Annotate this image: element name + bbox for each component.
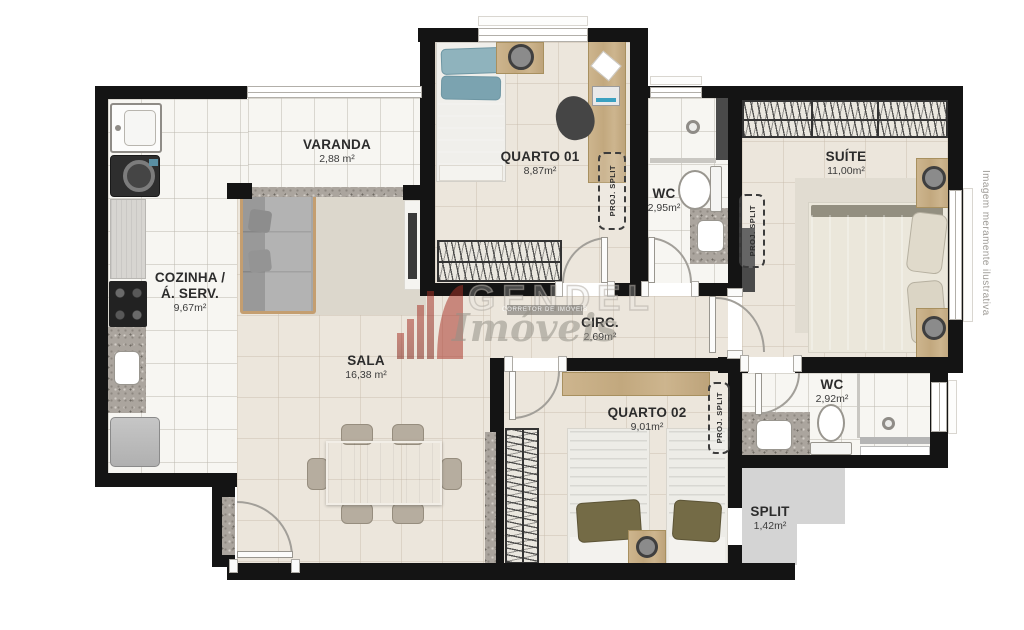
sofa-seat-cushions	[265, 191, 311, 311]
fridge	[110, 417, 160, 467]
wall	[227, 563, 795, 580]
label-wc1: WC 2,95m²	[648, 186, 681, 215]
logo-bar	[417, 305, 424, 359]
wardrobe-divider	[811, 102, 813, 136]
room-name: QUARTO 02	[608, 405, 687, 421]
shower-wall-wc1	[716, 98, 728, 160]
wall	[740, 86, 962, 100]
proj-split-label: PROJ. SPLIT	[748, 205, 757, 256]
wall	[420, 198, 435, 288]
wardrobe-quarto01	[437, 240, 562, 282]
washing-machine	[110, 155, 160, 197]
dining-chair	[341, 503, 373, 524]
window-wc2	[931, 382, 947, 432]
laptop	[592, 86, 620, 106]
label-varanda: VARANDA 2,88 m²	[303, 137, 371, 166]
window-sill	[650, 76, 702, 85]
label-cozinha: COZINHA / Á. SERV. 9,67m²	[155, 270, 225, 315]
wardrobe-quarto02	[505, 428, 539, 564]
tv-panel	[404, 200, 421, 290]
bed-blanket	[811, 215, 917, 350]
bed-pillow	[441, 47, 502, 75]
wardrobe-divider	[877, 102, 879, 136]
laptop-keyboard	[596, 98, 616, 102]
floor-plan: PROJ. SPLIT PROJ. SPLIT PROJ. SPLIT VARA…	[0, 0, 1024, 630]
logo-bar	[427, 291, 434, 359]
disclaimer-text: Imagem meramente ilustrativa	[980, 170, 991, 385]
dining-table	[326, 441, 442, 505]
wall	[95, 86, 108, 478]
label-split: SPLIT 1,42m²	[750, 504, 789, 533]
dining-chair	[441, 458, 462, 490]
proj-split-label: PROJ. SPLIT	[715, 392, 724, 443]
room-area: 8,87m²	[501, 165, 580, 178]
room-area: 9,01m²	[608, 421, 687, 434]
bed-pillow	[441, 75, 501, 100]
kitchen-sink	[114, 351, 140, 385]
bed-pillow	[672, 499, 723, 542]
bed-pillow	[905, 211, 948, 275]
door-jamb	[727, 288, 743, 297]
wall	[227, 183, 252, 199]
wardrobe-suite	[742, 100, 948, 138]
window-sill	[948, 380, 957, 434]
tank-basin	[124, 110, 156, 146]
wall	[630, 28, 648, 283]
entry-jamb-stone	[222, 497, 235, 555]
logo-bar	[397, 333, 404, 359]
room-name: QUARTO 01	[501, 149, 580, 165]
sofa	[240, 188, 316, 314]
quarto01-door-leaf	[601, 237, 608, 283]
door-jamb	[740, 355, 749, 372]
watermark-script: Imóveis	[452, 305, 617, 350]
wc1-door-leaf	[648, 237, 655, 283]
shelf-quarto02	[562, 372, 710, 396]
window-wc1	[650, 87, 702, 98]
bed-blanket	[438, 103, 504, 165]
washer-panel	[149, 159, 158, 166]
room-area: 2,92m²	[816, 393, 849, 406]
shower-glass-wc2	[857, 370, 860, 438]
lamp-quarto02	[636, 536, 658, 558]
lamp-suite-bottom	[922, 316, 946, 340]
shower-glass-wc1	[650, 158, 716, 163]
room-area: 1,42m²	[750, 520, 789, 533]
window-suite	[949, 190, 962, 320]
label-suite: SUÍTE 11,00m²	[826, 149, 867, 178]
proj-split-box-quarto02: PROJ. SPLIT	[708, 382, 730, 454]
room-area: 16,38 m²	[345, 369, 386, 382]
shower-ledge-wc2	[860, 437, 930, 444]
room-name: SPLIT	[750, 504, 789, 520]
shower-head-wc1	[686, 120, 700, 134]
label-quarto02: QUARTO 02 9,01m²	[608, 405, 687, 434]
sofa-pillow	[248, 209, 273, 234]
bed-sheet	[439, 165, 503, 181]
sofa-pillow	[248, 249, 272, 273]
proj-split-label: PROJ. SPLIT	[608, 165, 617, 216]
room-name: SUÍTE	[826, 149, 867, 165]
quarto02-door-leaf	[509, 371, 516, 420]
lamp-suite-top	[922, 166, 946, 190]
wall	[420, 28, 435, 200]
wall	[728, 468, 742, 508]
wall	[728, 455, 948, 468]
room-area: 2,95m²	[648, 202, 681, 215]
room-area: 9,67m²	[155, 302, 225, 315]
entry-door-leaf	[237, 551, 293, 558]
varanda-railing	[247, 86, 422, 98]
wall	[795, 357, 963, 373]
room-name: VARANDA	[303, 137, 371, 153]
room-name: COZINHA /	[155, 270, 225, 286]
dining-chair	[307, 458, 328, 490]
laundry-tank	[110, 103, 162, 153]
suite-door-leaf	[709, 296, 716, 353]
label-wc2: WC 2,92m²	[816, 377, 849, 406]
sink-wc1	[697, 220, 724, 252]
label-quarto01: QUARTO 01 8,87m²	[501, 149, 580, 178]
logo-bar	[407, 319, 414, 359]
watermark: GENDEL CORRETOR DE IMÓVEIS Imóveis	[395, 281, 685, 363]
wall	[728, 545, 742, 575]
shower-head-wc2	[882, 417, 895, 430]
door-jamb	[229, 559, 238, 573]
lamp-quarto01	[508, 44, 534, 70]
wall	[95, 86, 247, 99]
varanda-sliding-door-track	[252, 187, 403, 197]
door-jamb	[691, 281, 699, 297]
sink-wc2	[756, 420, 792, 450]
toilet-wc2	[817, 404, 845, 442]
toilet-wc1	[678, 170, 712, 210]
window-sill	[478, 16, 588, 26]
toilet-tank-wc2	[810, 442, 852, 455]
window-quarto01	[478, 28, 588, 42]
proj-split-box-quarto01: PROJ. SPLIT	[598, 152, 626, 230]
window-sill	[963, 188, 973, 322]
room-area: 11,00m²	[826, 165, 867, 178]
label-sala: SALA 16,38 m²	[345, 353, 386, 382]
wc2-door-leaf	[755, 373, 762, 415]
room-name: Á. SERV.	[155, 286, 225, 302]
stove	[109, 281, 147, 327]
room-area: 2,88 m²	[303, 153, 371, 166]
room-name: WC	[648, 186, 681, 202]
toilet-tank-wc1	[710, 166, 722, 212]
wall-stone-face	[485, 432, 496, 563]
kitchen-counter	[110, 199, 146, 279]
room-name: WC	[816, 377, 849, 393]
tank-faucet	[115, 125, 121, 131]
dining-chair	[392, 503, 424, 524]
room-name: SALA	[345, 353, 386, 369]
tv-icon	[408, 213, 417, 279]
door-jamb	[793, 355, 802, 372]
door-jamb	[291, 559, 300, 573]
proj-split-box-suite: PROJ. SPLIT	[739, 194, 765, 268]
